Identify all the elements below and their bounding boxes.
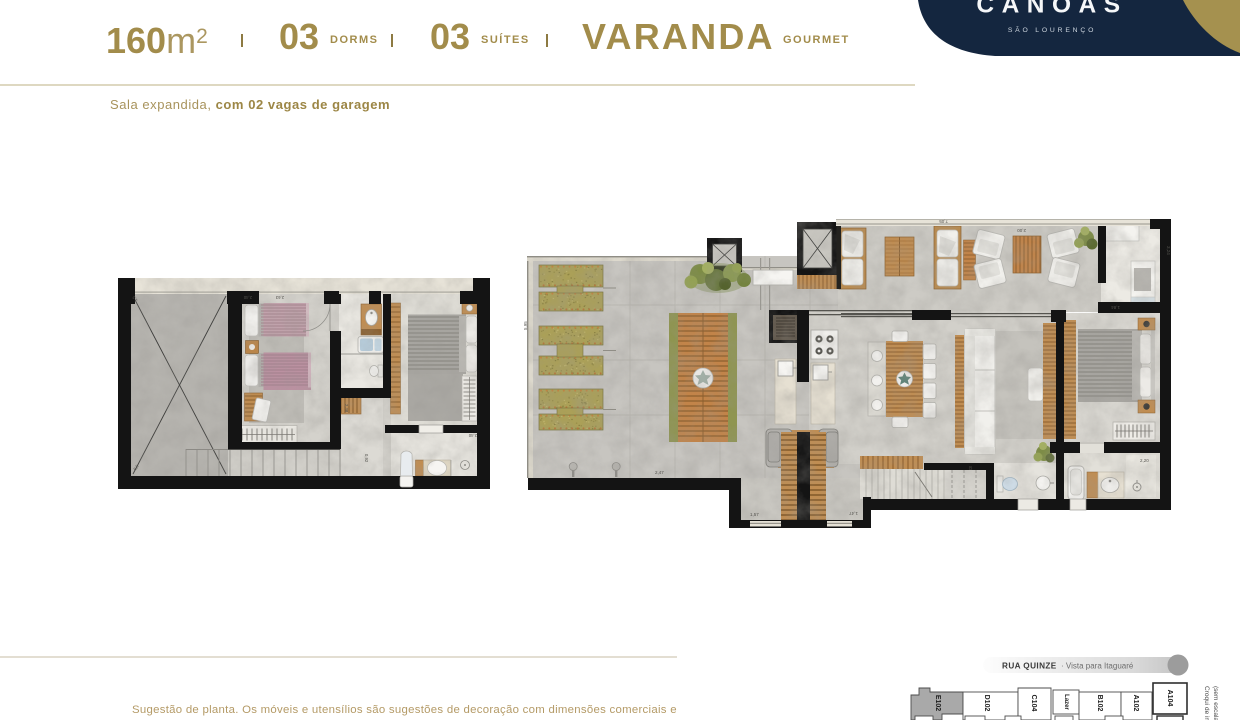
- svg-text:2,20: 2,20: [1140, 458, 1149, 463]
- svg-text:(sem escala): (sem escala): [1212, 686, 1219, 720]
- svg-text:2,38: 2,38: [344, 404, 349, 413]
- svg-text:2,40: 2,40: [243, 295, 252, 300]
- svg-text:E102: E102: [934, 695, 941, 711]
- svg-text:1,57: 1,57: [750, 512, 759, 517]
- svg-text:2,47: 2,47: [655, 470, 664, 475]
- svg-text:1,47: 1,47: [849, 511, 858, 516]
- svg-text:Lazer: Lazer: [1063, 694, 1069, 710]
- svg-text:7,05: 7,05: [939, 219, 948, 224]
- svg-text:A102: A102: [1132, 695, 1139, 712]
- svg-text:· Vista para Itaguaré: · Vista para Itaguaré: [1061, 662, 1134, 671]
- svg-text:A104: A104: [1166, 690, 1173, 707]
- svg-text:C104: C104: [1030, 695, 1037, 712]
- svg-text:B102: B102: [1096, 695, 1103, 712]
- svg-text:CANOAS: CANOAS: [976, 0, 1127, 19]
- svg-text:2,63: 2,63: [275, 295, 284, 300]
- svg-text:RUA QUINZE: RUA QUINZE: [1002, 662, 1057, 671]
- svg-text:SÃO LOURENÇO: SÃO LOURENÇO: [1008, 25, 1096, 34]
- svg-text:5,95: 5,95: [523, 321, 528, 330]
- svg-text:Croqui de implantação: Croqui de implantação: [1203, 686, 1210, 720]
- svg-text:2,00: 2,00: [1017, 228, 1026, 233]
- svg-text:2,40: 2,40: [468, 433, 477, 438]
- svg-text:0,92: 0,92: [364, 454, 369, 463]
- svg-text:1,84: 1,84: [1111, 305, 1120, 310]
- svg-text:D102: D102: [983, 695, 990, 712]
- svg-text:3,24: 3,24: [1166, 246, 1171, 255]
